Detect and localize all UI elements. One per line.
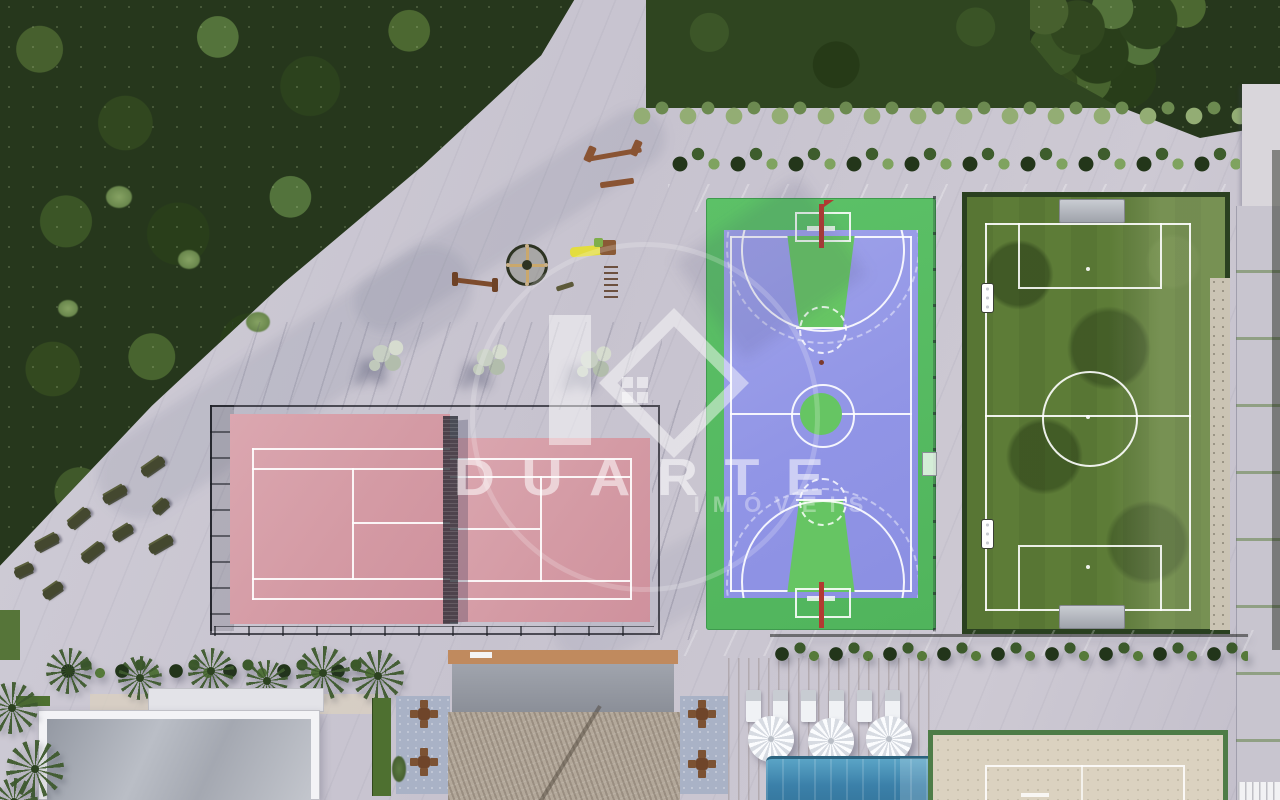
watermark-tagline-text: IMÓVEIS: [620, 492, 950, 518]
sun-lounger: [801, 690, 816, 722]
watermark-logo-stem: [549, 315, 591, 445]
pergola-roof: [1238, 782, 1280, 800]
planter-shrub-row: [668, 140, 1240, 186]
seesaw-seat: [452, 272, 458, 286]
sand-logo-mark: [1021, 793, 1049, 797]
tennis-court-left-half: [230, 414, 450, 624]
tennis-service-line: [352, 468, 354, 580]
court-fence: [933, 196, 936, 632]
tennis-center-line: [352, 522, 450, 524]
gravel-strip: [1210, 278, 1230, 630]
penalty-spot: [1086, 565, 1090, 569]
penalty-area-bottom: [1018, 545, 1162, 611]
lawn-patch: [0, 610, 20, 660]
edge-bush: [178, 250, 200, 269]
team-bench: [981, 283, 994, 313]
basketball-detail: [819, 360, 824, 365]
basketball-hoop-post-bottom: [819, 582, 824, 628]
aerial-render-scene: DUARTE IMÓVEIS: [0, 0, 1280, 800]
beach-tennis-net-line: [1081, 765, 1083, 800]
beach-tennis-lines: [985, 765, 1185, 800]
patio-table: [418, 756, 430, 768]
penalty-area-top: [1018, 223, 1162, 289]
tennis-doubles-sideline: [252, 448, 450, 450]
beach-tennis-court: [928, 730, 1228, 800]
watermark-logo-window: [637, 377, 648, 388]
patio-table: [418, 708, 430, 720]
watermark-logo-window: [637, 392, 648, 403]
seesaw-seat: [492, 278, 498, 292]
center-circle: [1042, 371, 1138, 467]
slide-top: [594, 238, 603, 247]
tennis-singles-sideline: [252, 578, 450, 580]
soccer-goal-top: [1059, 199, 1125, 223]
tennis-doubles-sideline: [252, 598, 450, 600]
touchline: [985, 223, 987, 611]
clubhouse-upper-roof: [148, 688, 324, 712]
palm-tree: [352, 650, 404, 702]
touchline: [1189, 223, 1191, 611]
patio-table: [696, 708, 708, 720]
soccer-field: [962, 192, 1230, 634]
tennis-doubles-sideline: [450, 598, 630, 600]
sun-lounger: [857, 690, 872, 722]
grass-strip: [372, 698, 391, 796]
boundary-shade: [1272, 150, 1280, 650]
center-spot: [1086, 415, 1090, 419]
soccer-goal-bottom: [1059, 605, 1125, 629]
clubhouse-roof-inner: [47, 719, 311, 800]
team-bench: [981, 519, 994, 549]
clubhouse-roof: [38, 710, 320, 800]
flag-top: [824, 200, 834, 207]
edge-bush: [58, 300, 78, 317]
scoreboard-panel: [922, 452, 937, 476]
penalty-spot: [1086, 267, 1090, 271]
tennis-fence-bottom: [214, 626, 654, 636]
patio-table: [696, 758, 708, 770]
edge-bush: [106, 186, 132, 208]
kiosk-flat-roof: [452, 664, 674, 712]
sun-lounger: [746, 690, 761, 722]
bush-row: [628, 94, 1268, 142]
watermark-logo-window: [622, 392, 633, 403]
tennis-singles-sideline: [252, 468, 450, 470]
watermark-logo-window: [622, 377, 633, 388]
palm-tree: [46, 648, 92, 694]
kiosk-thatch-roof: [448, 712, 680, 800]
kiosk-vent: [470, 652, 492, 658]
shrub: [392, 756, 406, 782]
